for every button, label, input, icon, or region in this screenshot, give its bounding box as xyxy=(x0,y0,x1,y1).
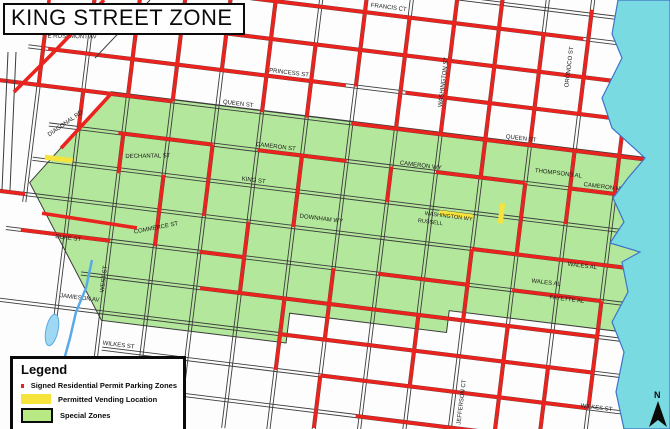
map-title-box: KING STREET ZONE xyxy=(3,3,245,35)
legend-item-label: Signed Residential Permit Parking Zones xyxy=(31,381,177,390)
red-line-swatch xyxy=(21,384,24,388)
legend: Legend Signed Residential Permit Parking… xyxy=(10,356,186,429)
yellow-rect-swatch xyxy=(21,394,51,404)
legend-item-vending: Permitted Vending Location xyxy=(21,394,177,404)
street-label: DECHANTAL ST xyxy=(125,153,170,160)
north-arrow-label: N xyxy=(654,390,661,400)
vending-segment xyxy=(500,203,502,223)
legend-item-permit-parking: Signed Residential Permit Parking Zones xyxy=(21,381,177,390)
legend-item-label: Special Zones xyxy=(60,411,110,420)
legend-item-label: Permitted Vending Location xyxy=(58,395,157,404)
map-page: FRANCIS CTPRINCESS STQUEEN STQUEEN STCAM… xyxy=(0,0,670,429)
legend-title: Legend xyxy=(21,362,177,377)
map-title: KING STREET ZONE xyxy=(11,5,233,30)
green-rect-swatch xyxy=(21,408,53,423)
legend-item-special-zones: Special Zones xyxy=(21,408,177,423)
vending-segment xyxy=(45,157,73,160)
